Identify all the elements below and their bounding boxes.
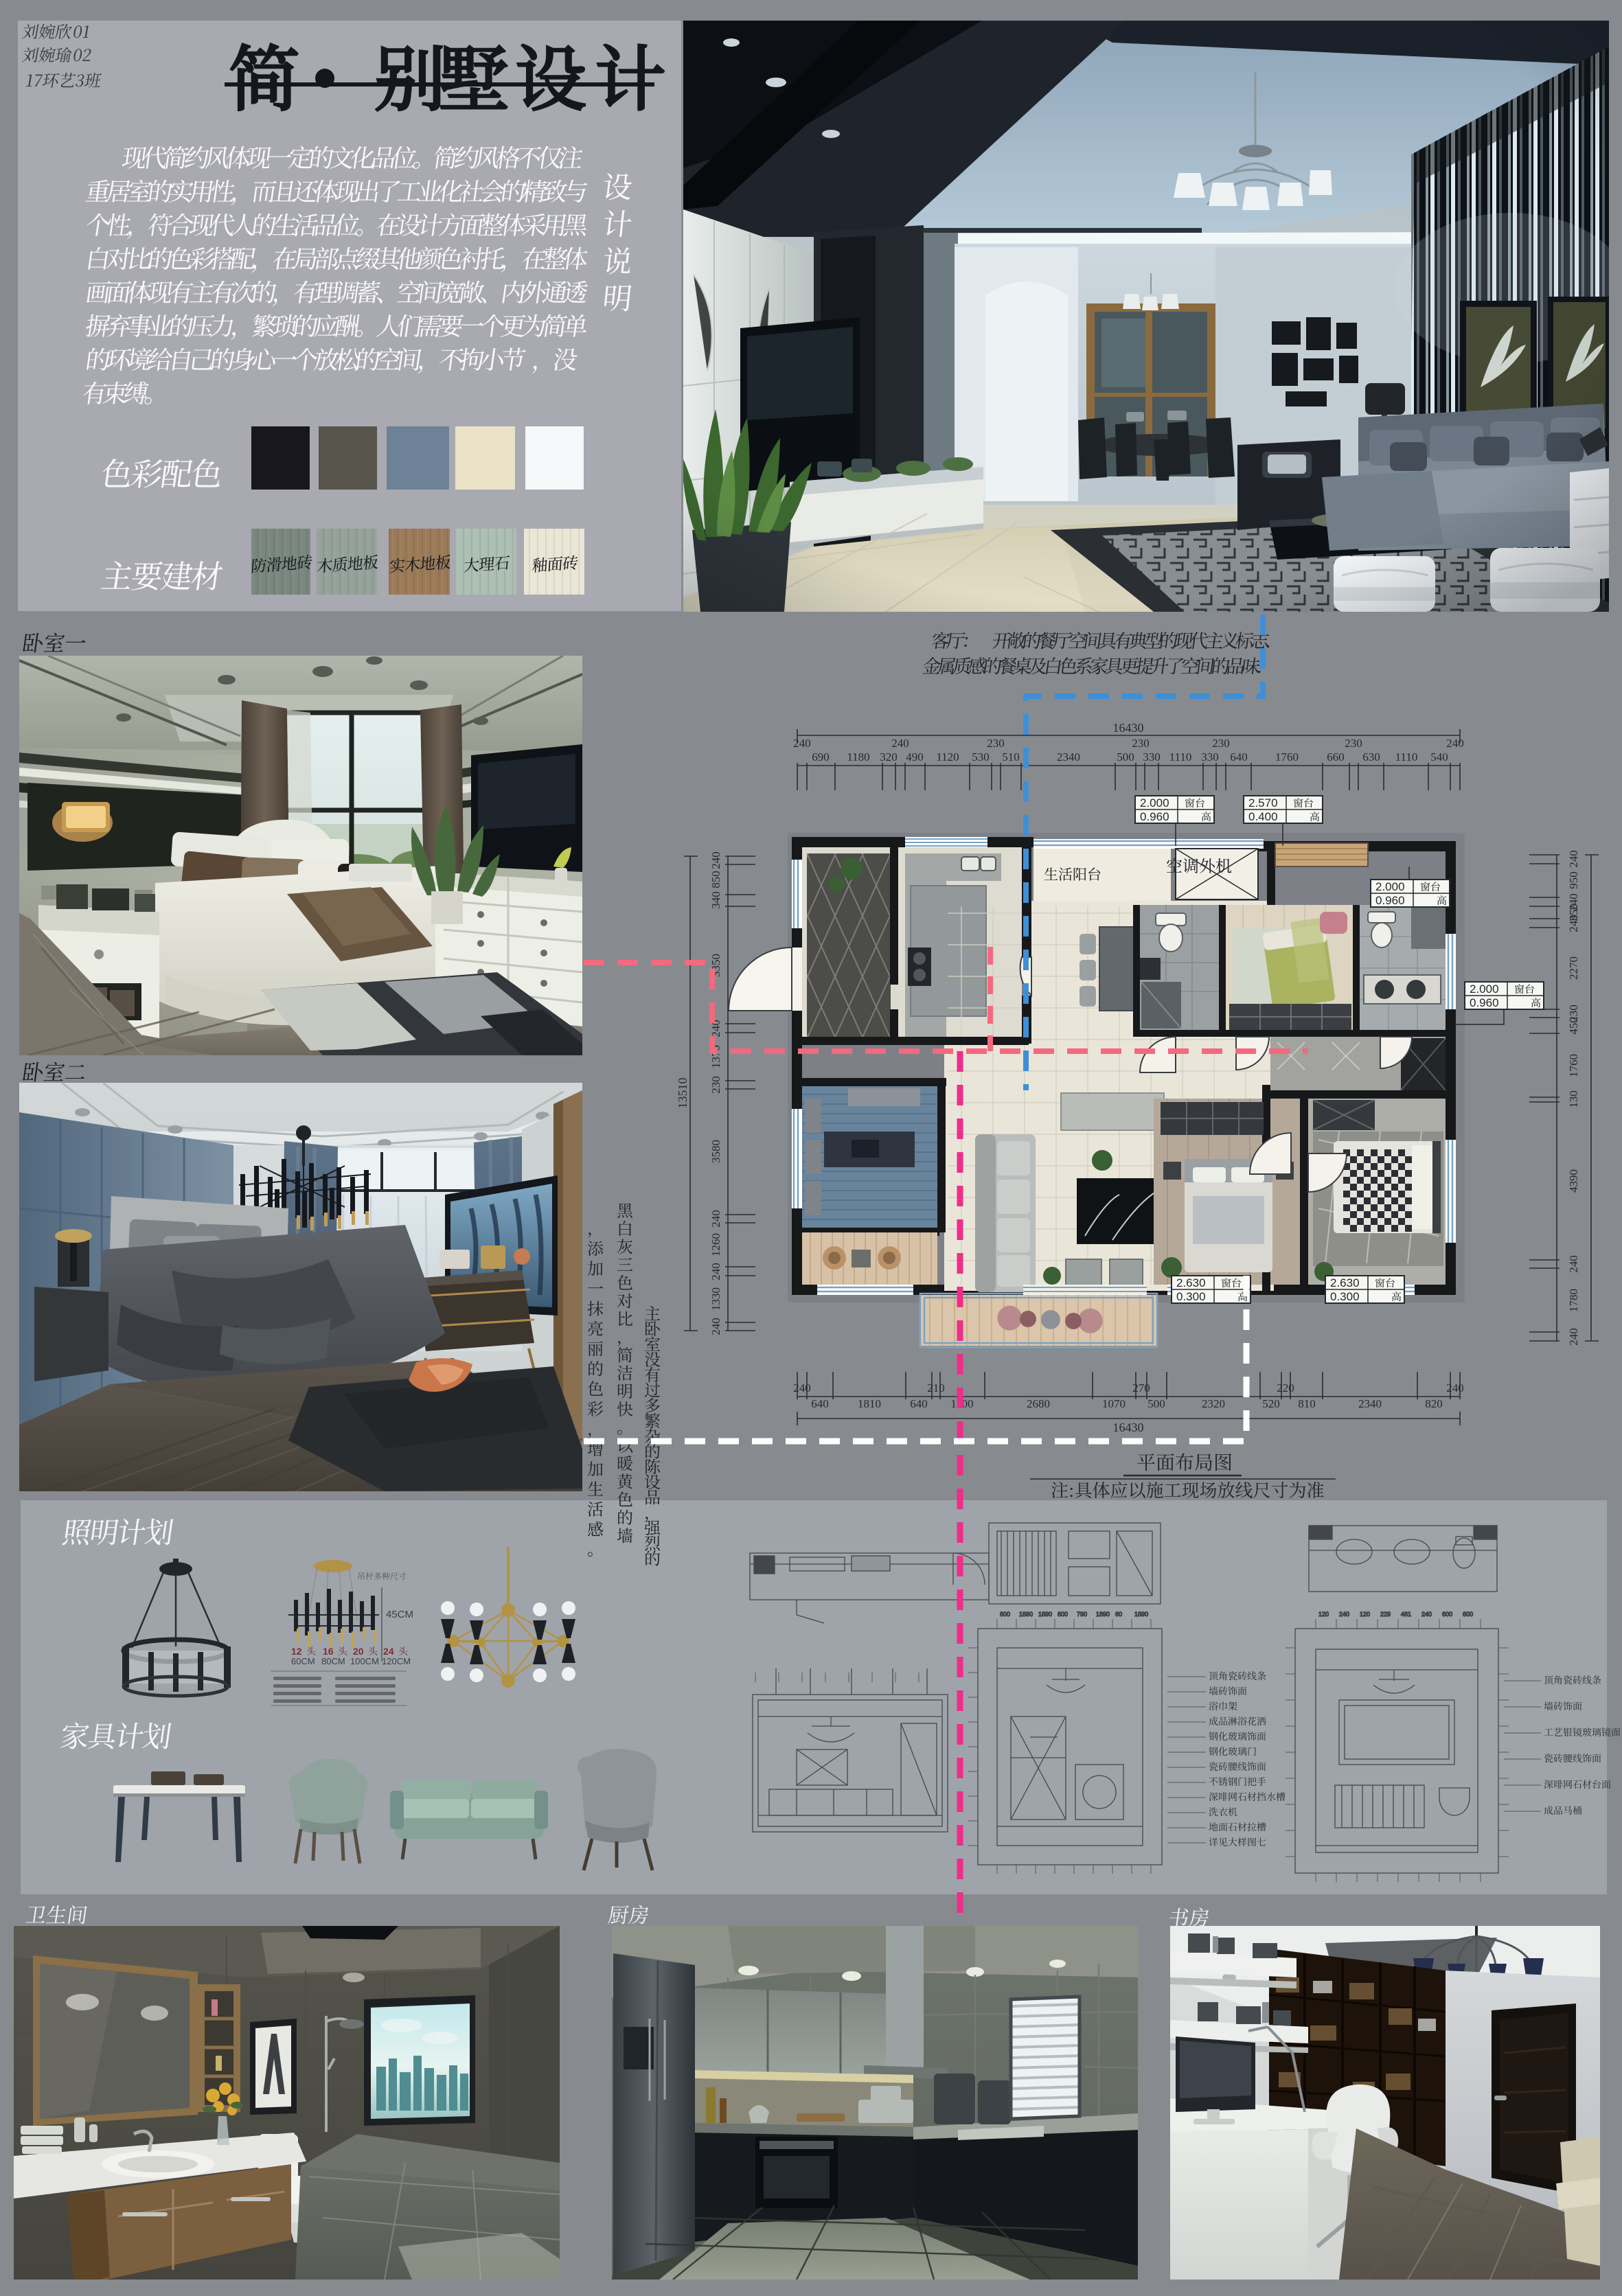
svg-text:690: 690 [812,750,830,764]
svg-text:320: 320 [880,750,898,764]
svg-text:130: 130 [1567,1090,1580,1108]
svg-text:240: 240 [709,1318,722,1335]
svg-text:510: 510 [1002,750,1020,764]
svg-text:1810: 1810 [858,1397,881,1410]
svg-text:461: 461 [1401,1611,1411,1618]
svg-text:229: 229 [1380,1611,1391,1618]
svg-text:330: 330 [1201,750,1219,764]
svg-text:2340: 2340 [1057,750,1080,764]
svg-text:0.400: 0.400 [1248,810,1278,823]
svg-text:2.000: 2.000 [1470,983,1499,996]
svg-text:240: 240 [1567,915,1580,932]
svg-text:240: 240 [793,737,811,750]
svg-text:1110: 1110 [1169,750,1192,764]
svg-text:600: 600 [1463,1611,1473,1618]
svg-text:600: 600 [1442,1611,1452,1618]
svg-text:240: 240 [1421,1611,1432,1618]
svg-text:2320: 2320 [1202,1397,1225,1410]
svg-text:520: 520 [1262,1397,1280,1410]
svg-text:810: 810 [1298,1397,1316,1410]
svg-text:16430: 16430 [1113,1421,1144,1434]
svg-text:540: 540 [1430,750,1448,764]
svg-text:640: 640 [1230,750,1248,764]
svg-text:500: 500 [1147,1397,1165,1410]
svg-text:240: 240 [793,1381,811,1394]
svg-text:1780: 1780 [1567,1289,1580,1312]
svg-text:60CM: 60CM [291,1656,315,1666]
svg-text:240: 240 [1446,737,1464,750]
svg-text:4390: 4390 [1567,1169,1580,1193]
svg-text:16: 16 [323,1646,334,1657]
svg-text:2680: 2680 [1027,1397,1050,1410]
svg-text:1890: 1890 [1096,1611,1110,1618]
svg-text:600: 600 [1058,1611,1068,1618]
svg-text:120: 120 [1360,1611,1370,1618]
svg-text:0.960: 0.960 [1140,810,1169,823]
svg-text:0.300: 0.300 [1176,1290,1206,1303]
svg-text:240: 240 [1339,1611,1349,1618]
svg-text:240: 240 [1567,1328,1580,1346]
svg-text:60: 60 [1115,1611,1122,1618]
svg-text:1760: 1760 [1275,750,1299,764]
svg-text:230: 230 [709,1076,722,1094]
svg-text:1760: 1760 [1567,1054,1580,1077]
svg-text:1180: 1180 [847,750,869,764]
svg-text:240: 240 [1567,1255,1580,1273]
svg-text:80CM: 80CM [321,1656,345,1666]
svg-text:230: 230 [987,737,1005,750]
svg-text:24: 24 [383,1646,394,1657]
svg-text:1890: 1890 [1038,1611,1052,1618]
svg-text:2.000: 2.000 [1375,880,1405,893]
svg-text:2.630: 2.630 [1176,1276,1206,1289]
svg-text:240: 240 [709,1263,722,1281]
svg-text:330: 330 [1143,750,1161,764]
svg-text:1070: 1070 [1102,1397,1126,1410]
svg-text:1890: 1890 [1019,1611,1033,1618]
svg-text:220: 220 [1277,1381,1294,1394]
svg-text:1330: 1330 [709,1287,722,1311]
svg-text:340: 340 [709,891,722,909]
svg-text:240: 240 [891,737,909,750]
svg-text:20: 20 [353,1646,364,1657]
svg-text:12: 12 [291,1646,302,1657]
svg-text:100CM: 100CM [350,1656,379,1666]
svg-text:820: 820 [1425,1397,1443,1410]
svg-text:45CM: 45CM [386,1609,413,1620]
svg-text:600: 600 [1000,1611,1010,1618]
svg-text:530: 530 [972,750,990,764]
svg-text:230: 230 [1132,737,1150,750]
svg-text:240: 240 [709,851,722,869]
svg-text:500: 500 [1117,750,1134,764]
svg-text:660: 660 [1327,750,1345,764]
svg-text:16430: 16430 [1113,721,1144,735]
svg-text:450: 450 [1567,1017,1580,1035]
svg-text:0.300: 0.300 [1330,1290,1360,1303]
svg-text:850: 850 [709,871,722,888]
svg-text:240: 240 [1446,1381,1464,1394]
svg-text:1890: 1890 [1134,1611,1148,1618]
svg-text:630: 630 [1362,750,1380,764]
svg-text:2.630: 2.630 [1330,1276,1360,1289]
svg-text:3580: 3580 [709,1140,722,1163]
svg-text:13510: 13510 [676,1078,689,1109]
svg-text:270: 270 [1132,1381,1150,1394]
svg-text:490: 490 [906,750,924,764]
svg-text:240: 240 [709,1210,722,1228]
svg-text:790: 790 [1077,1611,1087,1618]
svg-text:2.000: 2.000 [1140,796,1169,810]
svg-text:120CM: 120CM [382,1656,411,1666]
svg-text:230: 230 [1345,737,1362,750]
svg-text:240: 240 [1567,850,1580,868]
svg-text:640: 640 [910,1397,928,1410]
svg-text:210: 210 [927,1381,945,1394]
svg-text:230: 230 [1212,737,1230,750]
svg-text:2.570: 2.570 [1248,796,1278,810]
svg-text:1110: 1110 [1395,750,1418,764]
svg-text:1260: 1260 [709,1233,722,1256]
svg-text:1120: 1120 [936,750,959,764]
svg-text:2340: 2340 [1358,1397,1382,1410]
svg-text:0.960: 0.960 [1375,894,1405,907]
svg-text:640: 640 [811,1397,829,1410]
svg-text:120: 120 [1318,1611,1329,1618]
svg-text:2270: 2270 [1567,956,1580,980]
svg-text:950: 950 [1567,871,1580,889]
svg-text:0.960: 0.960 [1470,996,1499,1009]
